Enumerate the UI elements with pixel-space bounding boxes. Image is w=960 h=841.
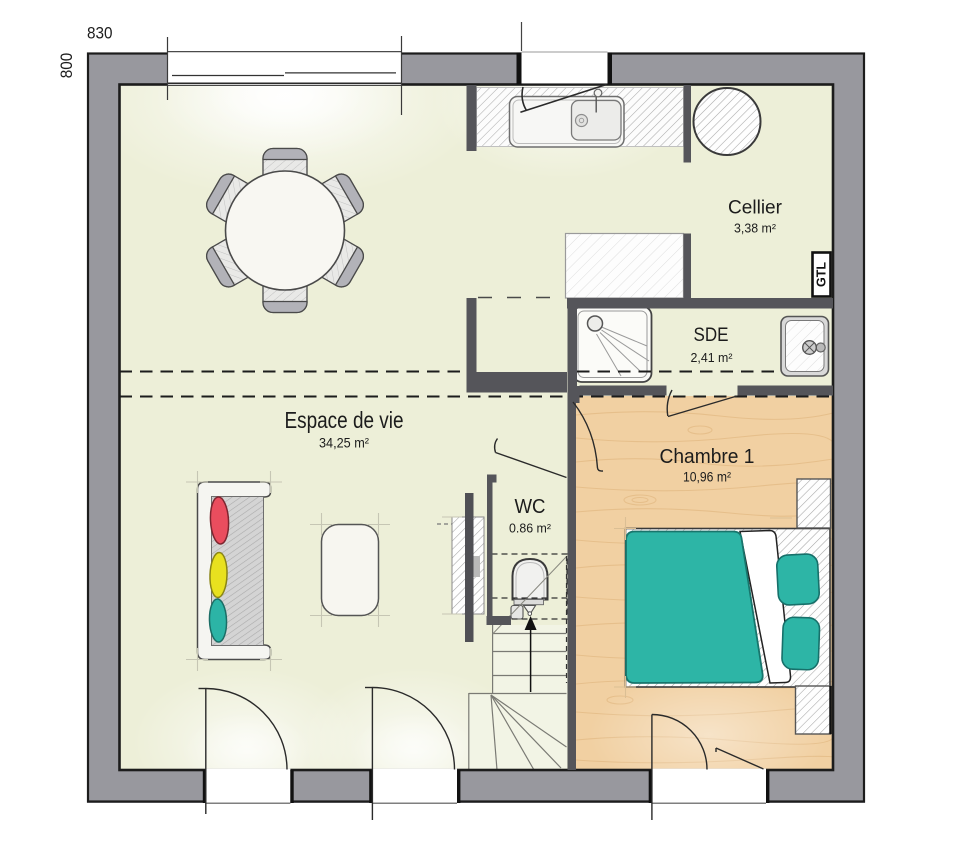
svg-text:0.86 m²: 0.86 m² [509, 521, 552, 536]
svg-text:800: 800 [58, 53, 76, 79]
svg-text:WC: WC [515, 495, 546, 518]
svg-text:Chambre 1: Chambre 1 [660, 445, 755, 468]
svg-text:2,41 m²: 2,41 m² [691, 350, 734, 365]
svg-text:SDE: SDE [694, 325, 729, 346]
svg-text:Espace de vie: Espace de vie [285, 407, 404, 433]
svg-text:10,96 m²: 10,96 m² [683, 469, 731, 485]
svg-text:GTL: GTL [815, 262, 829, 287]
svg-text:3,38 m²: 3,38 m² [734, 221, 777, 236]
svg-text:830: 830 [87, 25, 113, 43]
svg-text:34,25 m²: 34,25 m² [319, 436, 369, 451]
svg-text:Cellier: Cellier [728, 197, 782, 219]
